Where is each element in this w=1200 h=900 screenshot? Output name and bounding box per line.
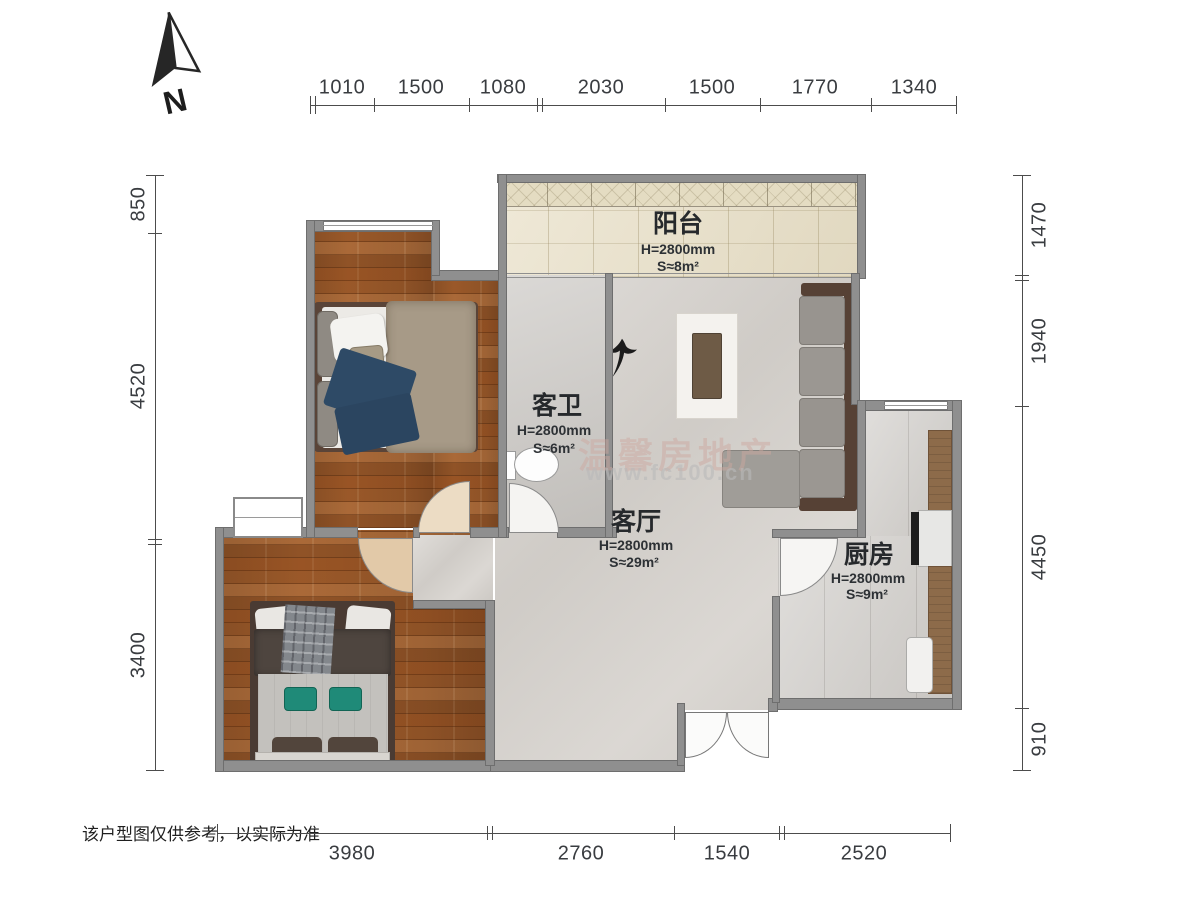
dim-tick [315, 96, 316, 114]
dim-tick [492, 826, 493, 840]
dim-label-top-0: 1010 [319, 77, 366, 100]
dim-label-bottom-2: 1540 [704, 843, 751, 866]
dim-tick [950, 824, 951, 842]
dim-tick [148, 233, 162, 234]
dim-tick [779, 826, 780, 840]
dim-label-left-2: 3400 [128, 632, 151, 679]
dim-tick [374, 98, 375, 112]
dim-label-left-0: 850 [128, 187, 151, 222]
dim-tick [148, 539, 162, 540]
dim-tick [469, 98, 470, 112]
dim-label-bottom-1: 2760 [558, 843, 605, 866]
dim-tick [487, 826, 488, 840]
dim-tick [760, 98, 761, 112]
dim-tick [1015, 280, 1029, 281]
dim-tick [1015, 406, 1029, 407]
dim-label-top-6: 1340 [891, 77, 938, 100]
dim-tick [537, 98, 538, 112]
dim-tick [784, 826, 785, 840]
dim-tick [674, 826, 675, 840]
dim-tick [542, 98, 543, 112]
dim-tick [146, 175, 164, 176]
dim-tick [956, 96, 957, 114]
dim-tick [146, 770, 164, 771]
dim-label-top-1: 1500 [398, 77, 445, 100]
dim-tick [217, 824, 218, 842]
dim-tick [1013, 770, 1031, 771]
dim-label-bottom-3: 2520 [841, 843, 888, 866]
dim-tick [665, 98, 666, 112]
dimension-layer: 1010150010802030150017701340398027601540… [0, 0, 1200, 900]
dim-tick [1015, 275, 1029, 276]
dim-label-right-1: 1940 [1029, 318, 1052, 365]
dim-tick [310, 96, 311, 114]
dim-label-top-3: 2030 [578, 77, 625, 100]
dim-line-right [1022, 175, 1023, 770]
dim-label-right-3: 910 [1029, 722, 1052, 757]
dim-line-top [310, 105, 956, 106]
dim-tick [148, 544, 162, 545]
dim-line-left [155, 175, 156, 770]
dim-line-bottom [217, 833, 950, 834]
dim-label-top-5: 1770 [792, 77, 839, 100]
floor-plan: 阳台 H=2800mm S≈8m² 客卫 H=2800mm S≈6m² 客厅 H… [0, 0, 1200, 900]
dim-tick [1013, 175, 1031, 176]
dim-label-top-4: 1500 [689, 77, 736, 100]
dim-label-right-0: 1470 [1029, 202, 1052, 249]
dim-label-bottom-0: 3980 [329, 843, 376, 866]
dim-tick [871, 98, 872, 112]
dim-tick [1015, 708, 1029, 709]
dim-label-top-2: 1080 [480, 77, 527, 100]
dim-label-left-1: 4520 [128, 363, 151, 410]
dim-label-right-2: 4450 [1029, 534, 1052, 581]
